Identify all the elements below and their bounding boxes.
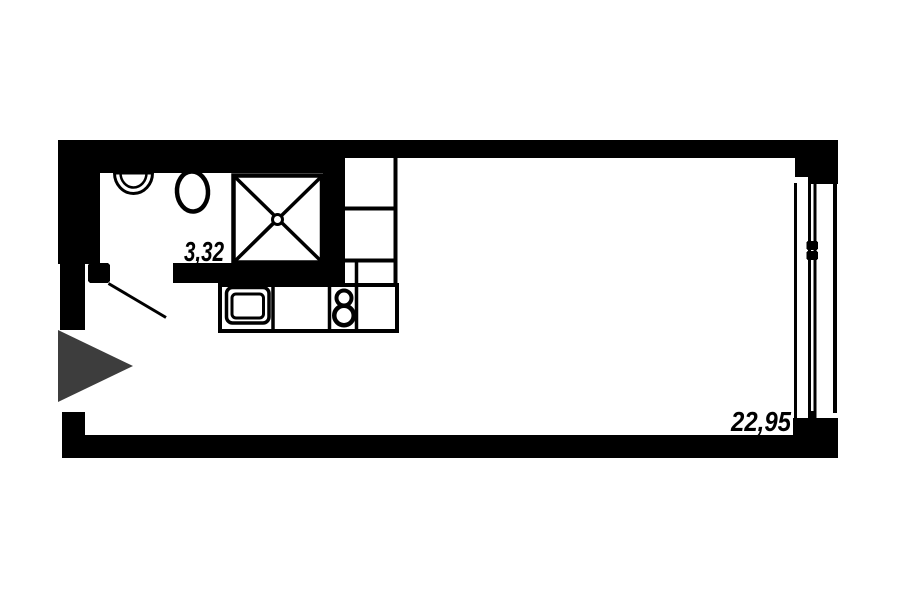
window-handle-lower — [807, 251, 819, 260]
bathroom-area-label: 3,32 — [184, 236, 224, 267]
wall-bottom — [62, 435, 838, 458]
wall-bottom-right-corner — [793, 418, 838, 458]
window-handle-upper — [807, 241, 819, 250]
window-frame-line-inner — [833, 183, 837, 413]
toilet — [176, 170, 210, 212]
cabinet-column-divider-1 — [345, 207, 397, 211]
window-frame-line-mid-1 — [808, 182, 811, 418]
wall-left-upper — [58, 140, 100, 264]
wall-bathroom-top — [58, 140, 345, 173]
main-room-area-label: 22,95 — [730, 406, 791, 437]
stove-burner-small — [337, 291, 352, 306]
shower-drain — [273, 215, 283, 225]
wall-top-right-step — [808, 177, 838, 184]
wall-bathroom-right — [323, 140, 345, 283]
kitchen-sink-basin — [232, 294, 264, 318]
cabinet-column-divider-2 — [345, 259, 397, 263]
door-jamb — [88, 263, 110, 283]
wall-top-right-corner — [795, 140, 838, 177]
window-frame-line-outer — [794, 183, 797, 435]
floorplan-canvas: 3,32 22,95 — [0, 0, 900, 600]
stove-burner-large — [334, 306, 354, 326]
window-frame-line-mid-2 — [814, 182, 817, 418]
wall-left-lower — [60, 263, 85, 330]
